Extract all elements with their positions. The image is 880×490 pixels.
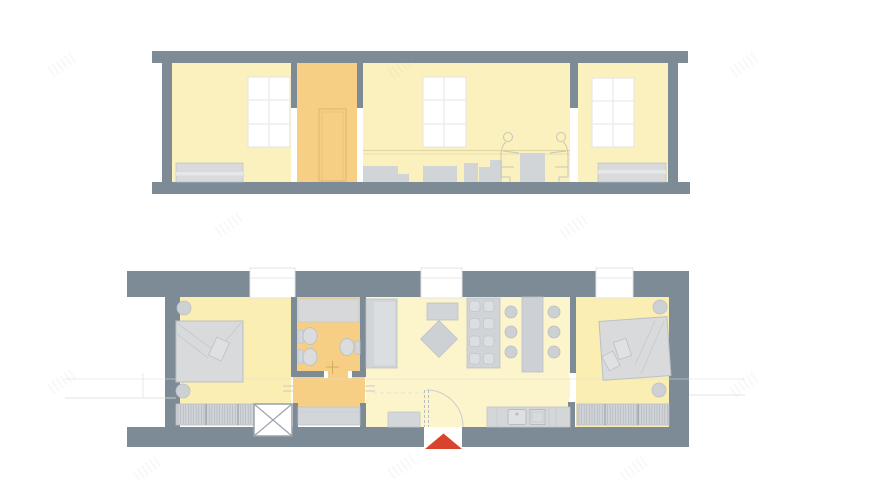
plan-floor-hallway	[293, 377, 365, 403]
drawing-canvas	[0, 0, 880, 490]
section-cabinet	[423, 166, 457, 182]
bath-shower	[298, 299, 359, 322]
plan-window-3	[596, 268, 633, 298]
section-sofa-arm	[398, 174, 409, 182]
plan-lower-stub-right	[360, 403, 366, 427]
cushion-1	[470, 301, 481, 312]
kitchen-counter	[487, 407, 570, 427]
cushion-3	[470, 319, 481, 330]
plan-bath-stub-right	[352, 371, 366, 377]
plan-partition-bed2	[570, 297, 576, 375]
laundry-cabinet	[298, 407, 360, 425]
architectural-drawing-page	[0, 0, 880, 490]
section-door-gap-3	[571, 108, 577, 182]
section-door-gap-1	[291, 108, 297, 182]
chair-4	[548, 306, 560, 318]
plan-bottom-wall-2	[462, 427, 689, 447]
bed2-stool-bottom	[652, 383, 666, 397]
plan-top-wall-4	[633, 271, 689, 297]
cushion-7	[470, 354, 481, 365]
plan-view	[65, 268, 745, 449]
section-bed-right-mattress	[598, 170, 666, 174]
shoe-cabinet	[388, 412, 420, 427]
section-sofa	[363, 166, 398, 182]
section-stool	[490, 160, 502, 182]
bed1-stool-bottom	[176, 384, 190, 398]
sink-faucet	[516, 413, 519, 416]
plan-bath-door-jamb-r	[348, 371, 352, 378]
section-bed-left-mattress	[176, 172, 243, 176]
cushion-5	[470, 336, 481, 347]
cushion-4	[484, 319, 495, 330]
plan-lower-stub-left	[293, 403, 298, 427]
plan-bath-stub-left	[297, 371, 325, 377]
bed1-stool-top	[177, 301, 191, 315]
sofa-seat	[374, 302, 395, 365]
chair-2	[505, 326, 517, 338]
toilet-2-bowl	[303, 349, 317, 366]
plan-bed2-door-jamb-t	[569, 373, 576, 377]
plan-window-2	[421, 268, 462, 298]
chair-1	[505, 306, 517, 318]
section-door-gap-2	[357, 108, 363, 182]
section-chair-a	[464, 163, 478, 182]
kitchen-sink	[508, 410, 526, 425]
toilet-1-bowl	[303, 328, 317, 345]
cushion-6	[484, 336, 495, 347]
section-corridor-interior	[297, 63, 357, 182]
entry-arrow	[425, 434, 462, 450]
plan-top-wall-3	[462, 271, 596, 297]
plan-bath-door-jamb-l	[324, 371, 328, 378]
roof-slab	[152, 51, 688, 63]
plan-bath-wall-left	[291, 297, 297, 377]
plan-top-wall-2	[295, 271, 421, 297]
cushion-8	[484, 354, 495, 365]
plan-right-wall	[669, 297, 689, 447]
toilet-3-tank	[355, 341, 360, 354]
section-left-wall	[162, 63, 172, 182]
plan-bed2-door-jamb-b	[569, 398, 576, 402]
dining-table	[522, 297, 543, 372]
plan-top-wall-1	[127, 271, 250, 297]
chair-6	[548, 346, 560, 358]
bed2-stool-top	[653, 300, 667, 314]
section-right-wall	[668, 63, 678, 182]
plan-window-1	[250, 268, 295, 298]
section-partition-lintel-2	[357, 63, 363, 108]
chair-3	[505, 346, 517, 358]
cushion-2	[484, 301, 495, 312]
chair-5	[548, 326, 560, 338]
section-partition-lintel-1	[291, 63, 297, 108]
floor-slab	[152, 182, 690, 194]
section-table	[520, 153, 545, 182]
section-view	[152, 51, 690, 194]
toilet-1-tank	[298, 330, 303, 343]
tv-shelf	[427, 303, 458, 320]
section-partition-lintel-3	[570, 63, 578, 108]
wardrobe1	[176, 404, 254, 425]
plan-bath-wall-right	[360, 297, 366, 377]
toilet-3-bowl	[340, 339, 354, 356]
toilet-2-tank	[298, 350, 303, 363]
